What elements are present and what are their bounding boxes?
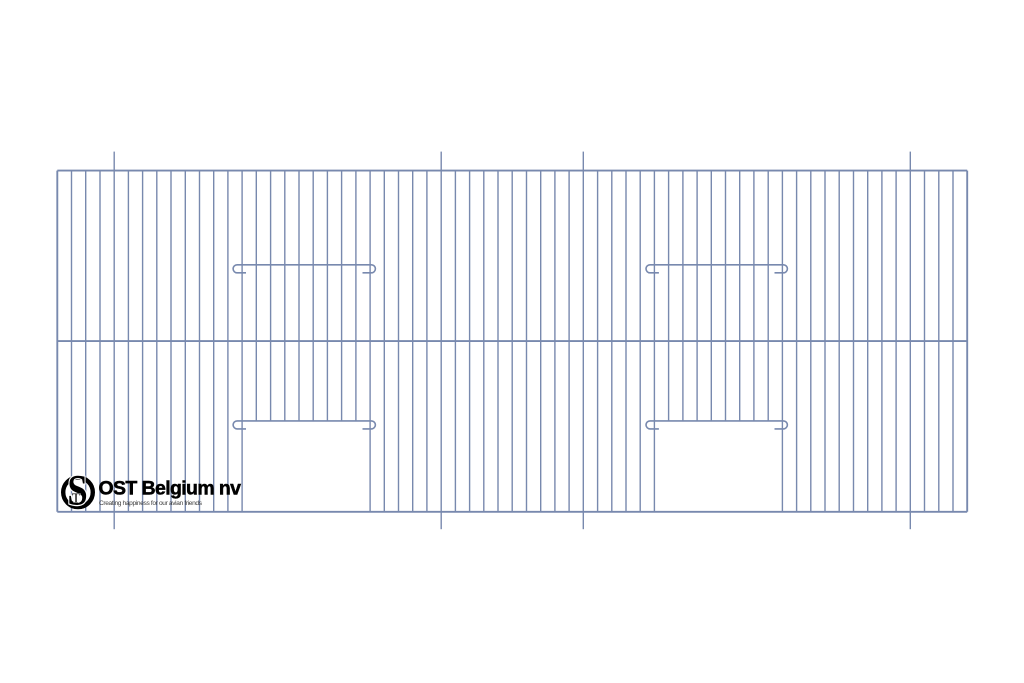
svg-text:T: T xyxy=(72,492,81,507)
svg-text:OST Belgium nv: OST Belgium nv xyxy=(99,477,242,499)
svg-text:Creating happiness for our avi: Creating happiness for our avian friends xyxy=(99,500,203,507)
svg-text:S: S xyxy=(67,466,87,514)
